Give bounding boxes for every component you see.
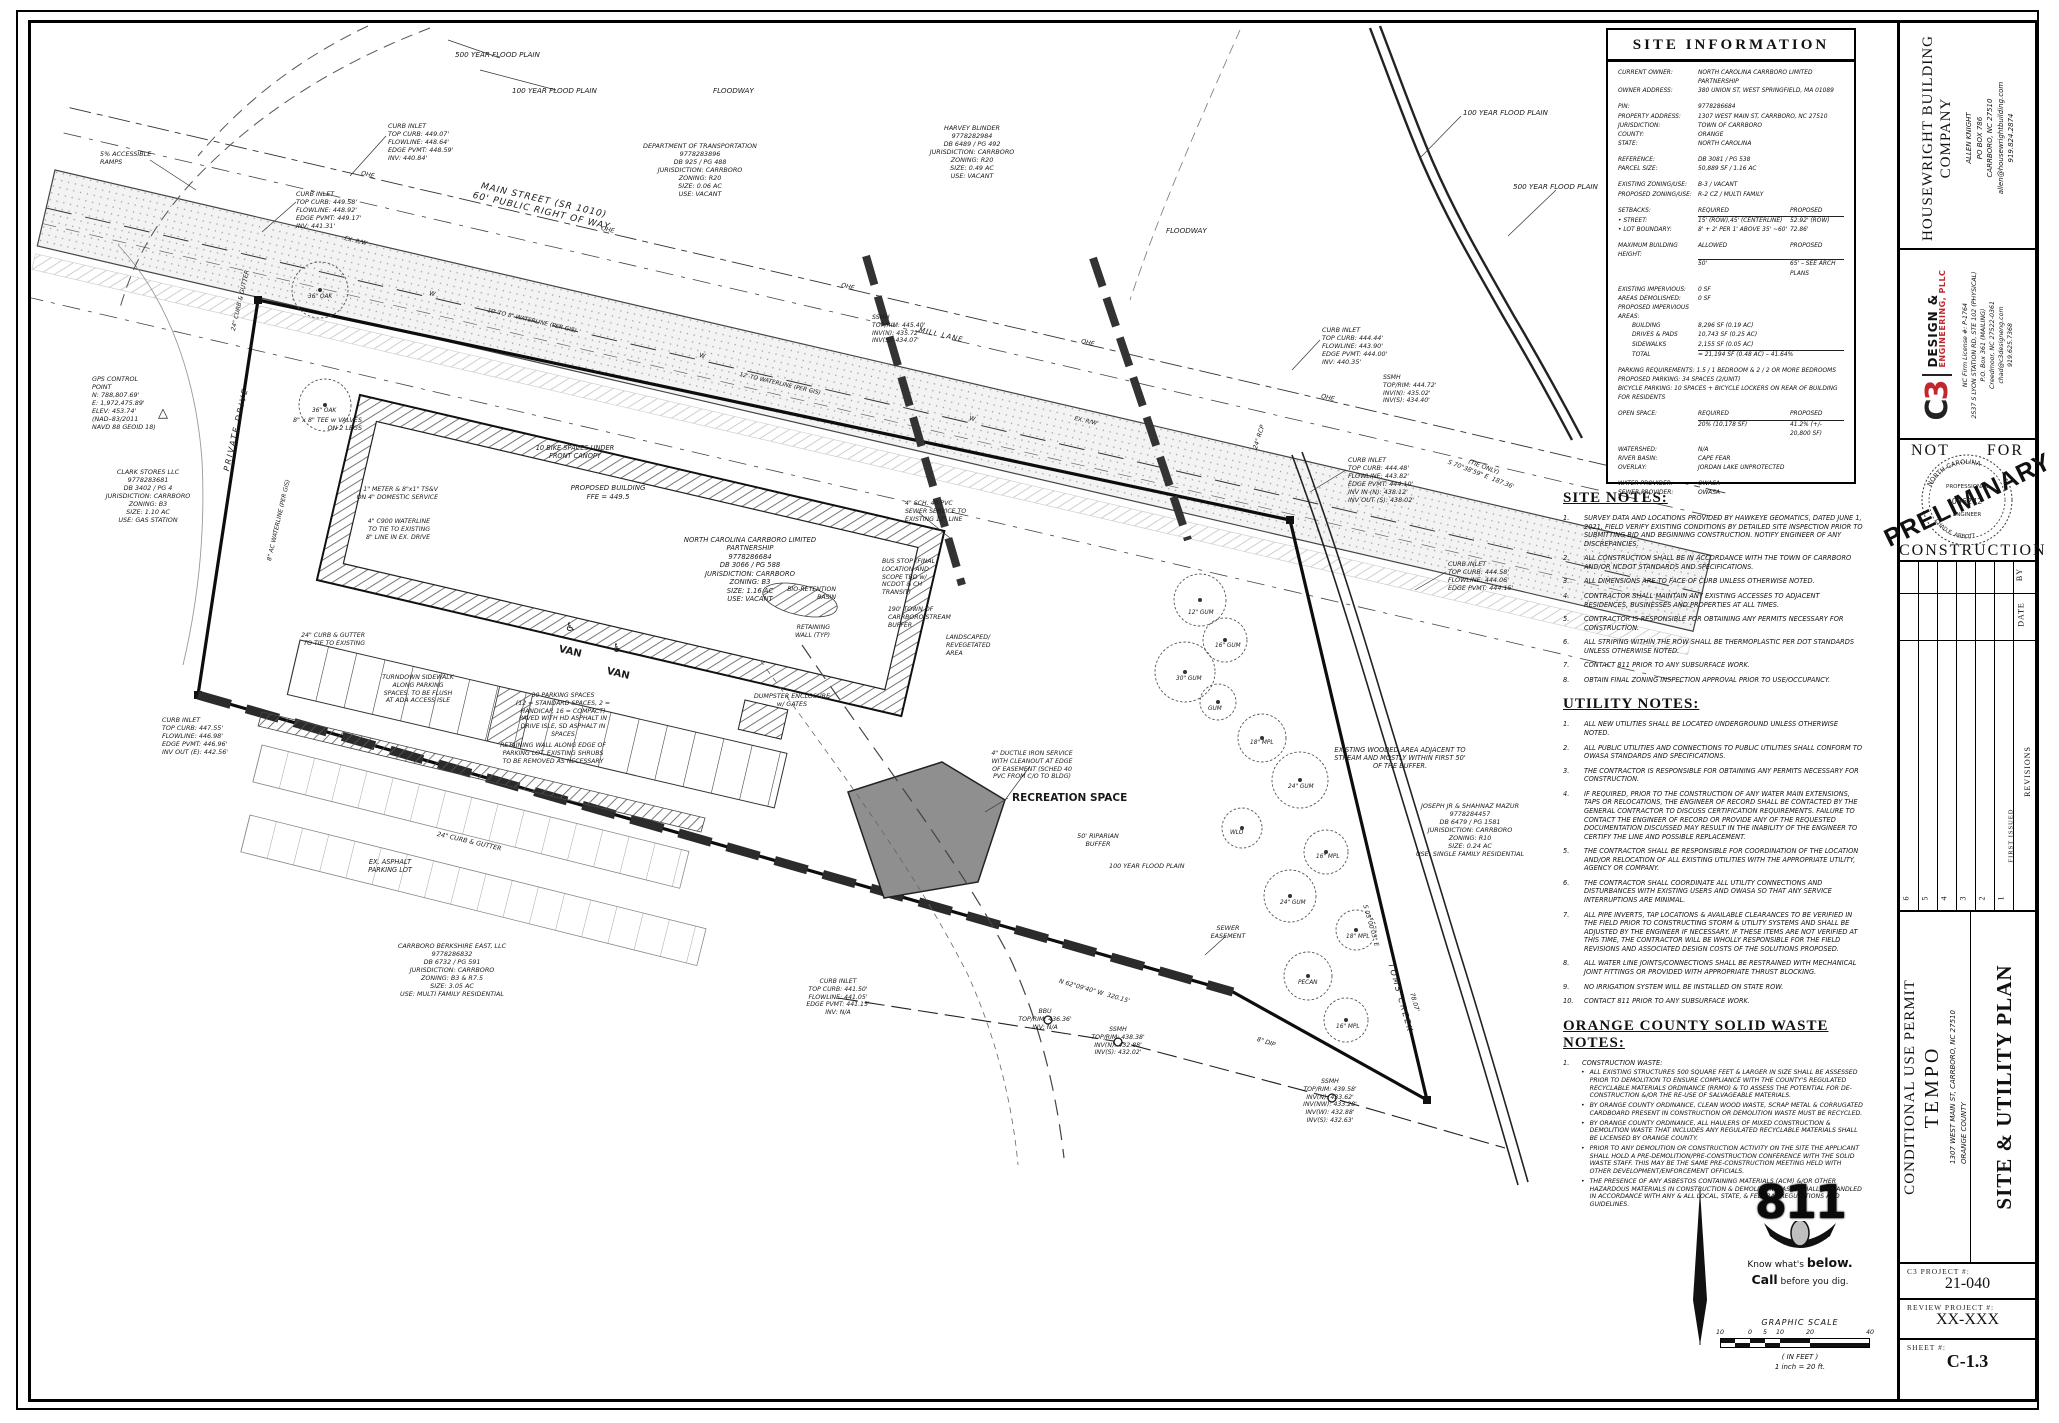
scale-tick: 10 (1776, 1329, 1784, 1336)
plan-annotation: OHE (360, 170, 375, 181)
plan-annotation: 500 YEAR FLOOD PLAIN (455, 50, 540, 59)
plan-annotation: CURB INLET TOP CURB: 449.07' FLOWLINE: 4… (388, 122, 453, 162)
revision-table: BY DATE REVISIONS FIRST ISSUED 654321 (1899, 562, 2036, 912)
site-info-row: OWNER ADDRESS:380 UNION ST, WEST SPRINGF… (1618, 87, 1844, 96)
plan-annotation: 190' TOWN OF CARRBORO STREAM BUFFER (888, 606, 951, 629)
waste-bullet: •ALL EXISTING STRUCTURES 500 SQUARE FEET… (1581, 1069, 1863, 1100)
note-item: 1.SURVEY DATA AND LOCATIONS PROVIDED BY … (1563, 514, 1863, 548)
note-item: 3.THE CONTRACTOR IS RESPONSIBLE FOR OBTA… (1563, 767, 1863, 784)
plan-annotation: W (428, 290, 436, 299)
review-project-cell: REVIEW PROJECT #: XX-XXX (1899, 1300, 2036, 1340)
note-item: 3.ALL DIMENSIONS ARE TO FACE OF CURB UNL… (1563, 577, 1863, 586)
note-item: 9.NO IRRIGATION SYSTEM WILL BE INSTALLED… (1563, 983, 1863, 992)
plan-annotation: 30" GUM (1176, 676, 1202, 683)
plan-annotation: 500 YEAR FLOOD PLAIN (1513, 182, 1598, 191)
site-info-row: OPEN SPACE:REQUIREDPROPOSED (1618, 410, 1844, 420)
waste-item-number: 1. (1563, 1059, 1575, 1068)
site-info-row: EXISTING ZONING/USE:B-3 / VACANT (1618, 181, 1844, 190)
plan-annotation: CARRBORO BERKSHIRE EAST, LLC 9778286832 … (398, 942, 506, 998)
plan-annotation: 5% ACCESSIBLE RAMPS (100, 150, 151, 166)
plan-annotation: (TIE ONLY) S 70°38'59" E 187.36' (1447, 451, 1518, 491)
note-item: 2.ALL CONSTRUCTION SHALL BE IN ACCORDANC… (1563, 554, 1863, 571)
note-item: 5.THE CONTRACTOR SHALL BE RESPONSIBLE FO… (1563, 847, 1863, 873)
plan-annotation: VAN (605, 666, 630, 683)
site-info-row: 50'65' – SEE ARCH PLANS (1618, 260, 1844, 278)
revision-first-issued: FIRST ISSUED (2007, 809, 2014, 863)
plan-annotation: WLO (1230, 830, 1243, 837)
project-name: TEMPO (1921, 1046, 1944, 1129)
plan-annotation: 8" DIP (1256, 1036, 1277, 1049)
plan-annotation: 1" METER & 8"x1" TS&V ON 4" DOMESTIC SER… (357, 486, 438, 502)
plan-annotation: 36" OAK (312, 408, 336, 415)
note-item: 2.ALL PUBLIC UTILITIES AND CONNECTIONS T… (1563, 744, 1863, 761)
plan-annotation: OHE (1080, 338, 1095, 349)
plan-annotation: 100 YEAR FLOOD PLAIN (512, 86, 597, 95)
site-info-row: PARCEL SIZE:50,889 SF / 1.16 AC (1618, 165, 1844, 174)
waste-bullet: •BY ORANGE COUNTY ORDINANCE, ALL HAULERS… (1581, 1120, 1863, 1143)
plan-annotation: 10' TO 8" WATERLINE (PER GIS) (486, 308, 577, 336)
note-item: 8.ALL WATER LINE JOINTS/CONNECTIONS SHAL… (1563, 959, 1863, 976)
plan-annotation: FLOODWAY (713, 86, 754, 95)
plan-annotation: CURB INLET TOP CURB: 444.48' FLOWLINE: 4… (1348, 456, 1414, 504)
scale-title: GRAPHIC SCALE (1700, 1318, 1900, 1327)
site-info-row: WATERSHED:N/A (1618, 446, 1844, 455)
plan-annotation: 12' TO WATERLINE (PER GIS) (738, 372, 821, 398)
scale-bar: 1005102040 (1720, 1329, 1880, 1353)
plan-annotation: PRIVATE DRIVE (222, 387, 251, 473)
revision-row-number: 1 (1997, 897, 2006, 901)
plan-annotation: CURB INLET TOP CURB: 441.50' FLOWLINE: 4… (806, 978, 869, 1017)
plan-annotation: W (968, 415, 976, 424)
plan-annotation: 16" GUM (1215, 643, 1241, 650)
plan-annotation: SSMH TOP/RIM: 438.38' INV(N): 432.88' IN… (1091, 1026, 1144, 1057)
site-info-row: SETBACKS:REQUIREDPROPOSED (1618, 207, 1844, 217)
construction-label: CONSTRUCTION (1899, 542, 2036, 560)
plan-annotation: 4" C900 WATERLINE TO TIE TO EXISTING 8" … (366, 518, 430, 541)
plan-annotation: CURB INLET TOP CURB: 447.55' FLOWLINE: 4… (162, 716, 228, 756)
site-info-rows: CURRENT OWNER:NORTH CAROLINA CARRBORO LI… (1608, 62, 1854, 505)
plan-annotation: DUMPSTER ENCLOSURE w/ GATES (754, 692, 830, 708)
note-item: 1.ALL NEW UTILITIES SHALL BE LOCATED UND… (1563, 720, 1863, 737)
site-info-row: REFERENCE:DB 3081 / PG 538 (1618, 156, 1844, 165)
plan-annotation: W (698, 352, 706, 361)
plan-annotation: △ (158, 406, 168, 422)
note-item: 6.THE CONTRACTOR SHALL COORDINATE ALL UT… (1563, 879, 1863, 905)
plan-annotation: TURNDOWN SIDEWALK ALONG PARKING SPACES. … (382, 674, 454, 705)
shovel-icon (1758, 1221, 1842, 1251)
call811-number: 811 (1712, 1182, 1888, 1223)
site-info-row: PARKING REQUIREMENTS: 1.5 / 1 BEDROOM & … (1618, 367, 1844, 376)
plan-annotation: 24" CURB & GUTTER TO TIE TO EXISTING (301, 632, 365, 648)
note-item: 10.CONTACT 811 PRIOR TO ANY SUBSURFACE W… (1563, 997, 1863, 1006)
sheet-title-block: SITE & UTILITY PLAN (1972, 912, 2036, 1262)
plan-annotation: CURB INLET TOP CURB: 449.58' FLOWLINE: 4… (296, 190, 361, 230)
site-info-row: OVERLAY:JORDAN LAKE UNPROTECTED (1618, 464, 1844, 473)
site-info-row: 20% (10,178 SF)41.2% (+/- 20,800 SF) (1618, 421, 1844, 439)
plan-annotation: 24" CURB & GUTTER (230, 270, 251, 332)
plan-annotation: 12" GUM (1188, 610, 1214, 617)
site-info-row: BICYCLE PARKING: 10 SPACES + BICYCLE LOC… (1618, 385, 1844, 403)
sheet-number: C-1.3 (1899, 1352, 2036, 1370)
plan-annotation: SEWER EASEMENT (1211, 924, 1246, 940)
site-info-row: • STREET:15' (ROW),45' (CENTERLINE)52.92… (1618, 217, 1844, 226)
notes-column: SITE NOTES: 1.SURVEY DATA AND LOCATIONS … (1563, 490, 1863, 1211)
site-info-row: TOTAL= 21,194 SF (0.48 AC) – 41.64% (1618, 351, 1844, 360)
plan-annotation: 78.07' (1408, 992, 1421, 1013)
c3-logo: C3 DESIGN & ENGINEERING, PLLC (1920, 270, 1955, 421)
waste-notes-heading: ORANGE COUNTY SOLID WASTE NOTES: (1563, 1018, 1863, 1052)
waste-notes-item: 1. CONSTRUCTION WASTE: (1563, 1059, 1863, 1068)
note-item: 4.CONTRACTOR SHALL MAINTAIN ANY EXISTING… (1563, 592, 1863, 609)
site-notes-heading: SITE NOTES: (1563, 490, 1863, 507)
company-block: HOUSEWRIGHT BUILDING COMPANY ALLEN KNIGH… (1899, 26, 2036, 250)
plan-annotation: EX. R/W (343, 236, 367, 248)
site-info-row: WATER PROVIDER:OWASA (1618, 480, 1844, 489)
plan-annotation: GUM (1208, 706, 1222, 713)
review-project-number: XX-XXX (1899, 1312, 2036, 1328)
revision-date-label: DATE (2017, 602, 2026, 626)
plan-annotation: OHE (1320, 393, 1335, 404)
site-info-row: STATE:NORTH CAROLINA (1618, 140, 1844, 149)
plan-annotation: FLOODWAY (1166, 226, 1207, 235)
plan-annotation: 50' RIPARIAN BUFFER (1077, 832, 1119, 848)
plan-annotation: OHE (600, 225, 615, 236)
scale-tick: 40 (1866, 1329, 1874, 1336)
plan-annotation: 24" CURB & GUTTER (436, 830, 502, 853)
waste-item-title: CONSTRUCTION WASTE: (1582, 1059, 1662, 1068)
scale-equiv: 1 inch = 20 ft. (1700, 1363, 1900, 1373)
revision-row-number: 2 (1978, 897, 1987, 901)
revision-revisions-label: REVISIONS (2023, 746, 2032, 797)
project-permit: CONDITIONAL USE PERMIT (1902, 979, 1919, 1195)
site-info-row: DRIVES & PADS10,743 SF (0.25 AC) (1618, 331, 1844, 340)
plan-annotation: SSMH TOP/RIM: 444.72' INV(N): 435.02' IN… (1383, 374, 1436, 405)
plan-annotation: CLARK STORES LLC 9778283681 DB 3402 / PG… (106, 468, 191, 524)
site-info-row: PROPOSED PARKING: 34 SPACES (2/UNIT) (1618, 376, 1844, 385)
plan-annotation: MAIN STREET (SR 1010) 60' PUBLIC RIGHT O… (471, 180, 613, 234)
c3-project-number: 21-040 (1899, 1276, 2036, 1292)
waste-bullet: •BY ORANGE COUNTY ORDINANCE, CLEAN WOOD … (1581, 1102, 1863, 1118)
site-info-row: CURRENT OWNER:NORTH CAROLINA CARRBORO LI… (1618, 69, 1844, 87)
site-info-row: EXISTING IMPERVIOUS:0 SF (1618, 286, 1844, 295)
note-item: 6.ALL STRIPING WITHIN THE ROW SHALL BE T… (1563, 638, 1863, 655)
plan-annotation: 8" AC WATERLINE (PER GIS) (266, 479, 292, 562)
call811-logo: 811 Know what's below. Call before you d… (1712, 1182, 1888, 1289)
plan-annotation: RETAINING WALL (TYP) (795, 624, 830, 640)
site-info-row: PIN:9778286684 (1618, 103, 1844, 112)
scale-tick: 0 (1748, 1329, 1752, 1336)
plan-annotation: EXISTING WOODED AREA ADJACENT TO STREAM … (1334, 746, 1465, 771)
plan-annotation: 4" DUCTILE IRON SERVICE WITH CLEANOUT AT… (991, 750, 1072, 781)
plan-annotation: BBU TOP/RIM: 436.36' INV: N/A (1018, 1008, 1071, 1031)
note-item: 8.OBTAIN FINAL ZONING INSPECTION APPROVA… (1563, 676, 1863, 685)
plan-annotation: ♿ (565, 620, 576, 635)
plan-annotation: GPS CONTROL POINT N: 788,807.69' E: 1,97… (92, 375, 156, 431)
plan-annotation: 8" x 8" TEE w VALVES ON 2 LEGS (293, 416, 362, 432)
utility-notes-heading: UTILITY NOTES: (1563, 696, 1863, 713)
site-info-row: RIVER BASIN:CAPE FEAR (1618, 455, 1844, 464)
plan-annotation: 30 PARKING SPACES (12 = STANDARD SPACES,… (516, 692, 610, 739)
plan-annotation: 10 BIKE SPACES UNDER FRONT CANOPY (536, 444, 615, 460)
plan-annotation: BIO-RETENTION BASIN (787, 586, 836, 602)
plan-annotation: 36" OAK (308, 294, 332, 301)
note-item: 5.CONTRACTOR IS RESPONSIBLE FOR OBTAININ… (1563, 615, 1863, 632)
scale-tick: 10 (1716, 1329, 1724, 1336)
revision-row-number: 6 (1902, 897, 1911, 901)
sheet-number-cell: SHEET #: C-1.3 (1899, 1340, 2036, 1399)
site-info-row: PROPERTY ADDRESS:1307 WEST MAIN ST, CARR… (1618, 113, 1844, 122)
site-info-row: BUILDING8,296 SF (0.19 AC) (1618, 322, 1844, 331)
stamp-block: NOT FOR NORTH CAROLINA CHAD E. ABBOTT PR… (1899, 440, 2036, 562)
site-info-row: AREAS DEMOLISHED:0 SF (1618, 295, 1844, 304)
site-info-row: COUNTY:ORANGE (1618, 131, 1844, 140)
plan-annotation: SSMH TOP/RIM: 439.58' INV(N): 433.62' IN… (1303, 1078, 1357, 1125)
site-info-row: MAXIMUM BUILDING HEIGHT:ALLOWEDPROPOSED (1618, 242, 1844, 260)
plan-annotation: 16" MPL (1336, 1024, 1360, 1031)
plan-annotation: RECREATION SPACE (1012, 792, 1127, 805)
plan-annotation: DEPARTMENT OF TRANSPORTATION 9778283896 … (643, 142, 757, 198)
plan-annotation: EX. ASPHALT PARKING LOT (368, 858, 412, 874)
note-item: 7.CONTACT 811 PRIOR TO ANY SUBSURFACE WO… (1563, 661, 1863, 670)
plan-annotation: SSMH TOP/RIM: 445.40' INV(N): 435.72' IN… (872, 314, 925, 345)
utility-notes-list: 1.ALL NEW UTILITIES SHALL BE LOCATED UND… (1563, 720, 1863, 1005)
plan-annotation: 18" MPL (1250, 740, 1274, 747)
site-info-row: PROPOSED IMPERVIOUS AREAS: (1618, 304, 1844, 322)
plan-annotation: ♿ (612, 641, 623, 656)
plan-annotation: HARVEY BLINDER 9778282984 DB 6489 / PG 4… (930, 124, 1015, 180)
plan-annotation: N 62°09'40" W 320.15' (1058, 978, 1131, 1006)
plan-annotation: CURB INLET TOP CURB: 444.58' FLOWLINE: 4… (1448, 560, 1513, 592)
site-notes-list: 1.SURVEY DATA AND LOCATIONS PROVIDED BY … (1563, 514, 1863, 684)
note-item: 4.IF REQUIRED, PRIOR TO THE CONSTRUCTION… (1563, 790, 1863, 841)
engineer-contact: NC Firm License #: P-17642537 S LYON STA… (1961, 271, 2016, 418)
site-info-row: PROPOSED ZONING/USE:R-2 CZ / MULTI FAMIL… (1618, 191, 1844, 200)
plan-annotation: PECAN (1298, 980, 1318, 987)
plan-annotation: PROPOSED BUILDING FFE = 449.5 (571, 484, 646, 502)
plan-annotation: VAN (557, 644, 582, 661)
waste-bullet: •PRIOR TO ANY DEMOLITION OR CONSTRUCTION… (1581, 1145, 1863, 1176)
call-dig-text: Call before you dig. (1712, 1272, 1888, 1289)
revision-by-label: BY (2015, 568, 2024, 581)
graphic-scale: GRAPHIC SCALE 1005102040 ( IN FEET ) 1 i… (1700, 1318, 1900, 1373)
plan-annotation: 24" RCP (1252, 424, 1267, 450)
plan-annotation: EX. R/W (1073, 416, 1097, 428)
plan-annotation: LANDSCAPED/ REVEGETATED AREA (946, 634, 991, 657)
plan-annotation: CURB INLET TOP CURB: 444.44' FLOWLINE: 4… (1322, 326, 1387, 366)
plan-annotation: 4" SCH. 40 PVC SEWER SERVICE TO EXISTING… (905, 500, 966, 523)
project-block: CONDITIONAL USE PERMIT TEMPO 1307 WEST M… (1899, 912, 1972, 1262)
site-info-row: JURISDICTION:TOWN OF CARRBORO (1618, 122, 1844, 131)
scale-tick: 5 (1763, 1329, 1767, 1336)
plan-annotation: 24" GUM (1288, 784, 1314, 791)
c3-project-cell: C3 PROJECT #: 21-040 (1899, 1264, 2036, 1300)
plan-annotation: 100 YEAR FLOOD PLAIN (1463, 108, 1548, 117)
site-info-row: SIDEWALKS2,155 SF (0.05 AC) (1618, 341, 1844, 351)
site-info-title: SITE INFORMATION (1608, 30, 1854, 62)
note-item: 7.ALL PIPE INVERTS, TAP LOCATIONS & AVAI… (1563, 911, 1863, 954)
plan-annotation: JOSEPH JR & SHAHNAZ MAZUR 9778284457 DB … (1416, 802, 1524, 858)
engineer-block: C3 DESIGN & ENGINEERING, PLLC NC Firm Li… (1899, 250, 2036, 440)
sheet: { "site_information": { "title": "SITE I… (0, 0, 2059, 1423)
site-info-box: SITE INFORMATION CURRENT OWNER:NORTH CAR… (1606, 28, 1856, 484)
plan-annotation: 18" MPL (1346, 934, 1370, 941)
plan-annotation: OHE (840, 282, 855, 293)
site-info-row: • LOT BOUNDARY:8' + 2' PER 1' ABOVE 35' … (1618, 226, 1844, 235)
revision-row-number: 3 (1959, 897, 1968, 901)
plan-annotation: 16" MPL (1316, 854, 1340, 861)
plan-annotation: BUS STOP (FINAL LOCATION AND SCOPE TBD w… (882, 558, 935, 597)
sheet-title: SITE & UTILITY PLAN (1992, 964, 2017, 1209)
company-name: HOUSEWRIGHT BUILDING COMPANY (1919, 35, 1957, 241)
revision-row-number: 5 (1921, 897, 1930, 901)
plan-annotation: 100 YEAR FLOOD PLAIN (1109, 862, 1185, 870)
plan-annotation: 24" GUM (1280, 900, 1306, 907)
project-address: 1307 WEST MAIN ST, CARRBORO, NC 27510 OR… (1948, 1010, 1969, 1164)
scale-tick: 20 (1806, 1329, 1814, 1336)
know-below-text: Know what's below. (1712, 1255, 1888, 1272)
scale-units: ( IN FEET ) (1700, 1353, 1900, 1363)
company-contact: ALLEN KNIGHTPO BOX 786CARRBORO, NC 27510… (1964, 82, 2017, 194)
plan-annotation: RETAINING WALL ALONG EDGE OF PARKING LOT… (500, 742, 606, 765)
revision-row-number: 4 (1940, 897, 1949, 901)
